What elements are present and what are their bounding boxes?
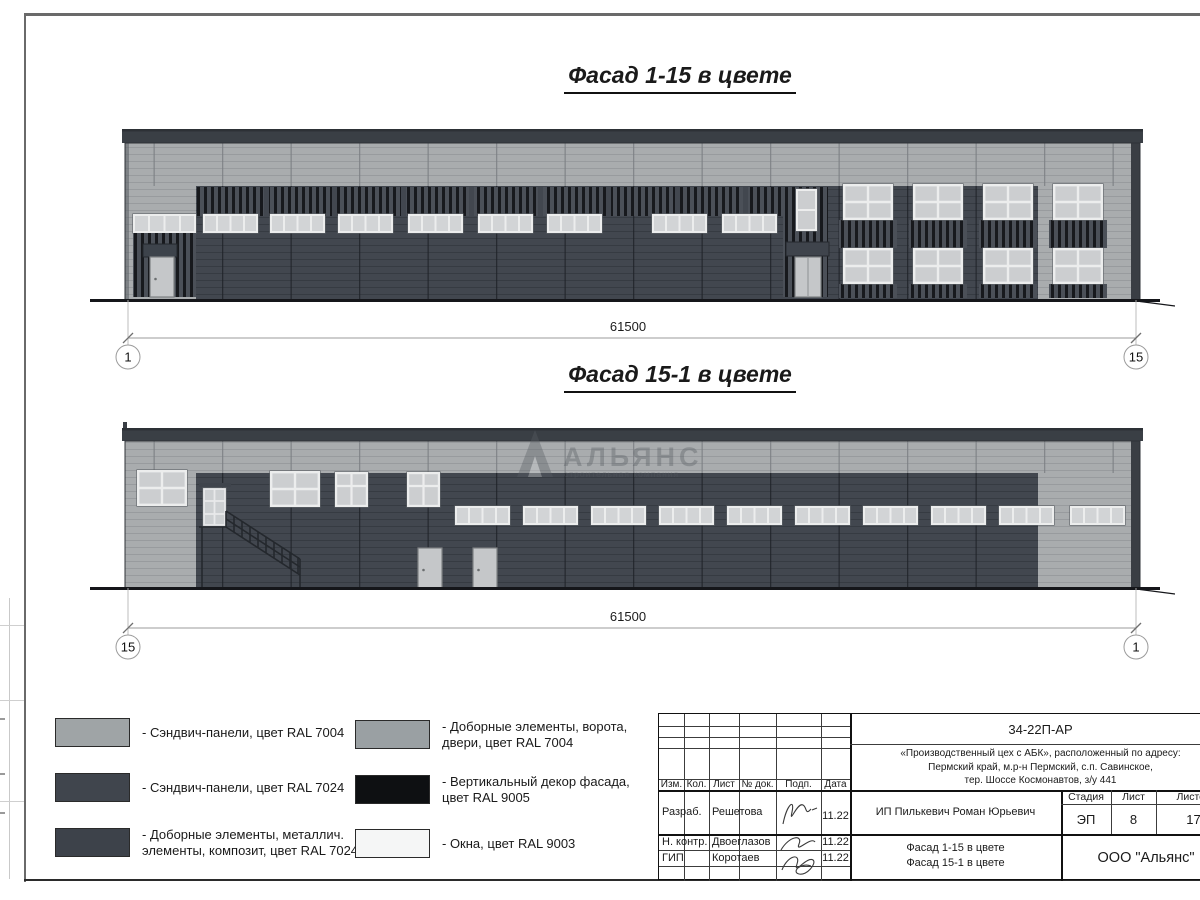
staff-role-nkontr: Н. контр. — [662, 834, 709, 850]
facade1-building — [122, 129, 1143, 300]
facade1-vertical-decor — [197, 187, 785, 216]
legend-label: - Вертикальный декор фасада, цвет RAL 90… — [442, 774, 630, 806]
left-margin-line — [9, 598, 10, 879]
title-block: Изм. Кол. Лист № док. Подп. Дата Разраб.… — [658, 713, 1200, 880]
legend-item: - Окна, цвет RAL 9003 — [355, 829, 575, 858]
rev-col-data: Дата — [821, 779, 850, 790]
drawing-sheet: Фасад 1-15 в цвете Фасад 15-1 в цвете — [0, 0, 1200, 900]
sheet-number: 8 — [1111, 804, 1156, 834]
legend-label: - Доборные элементы, металлич. элементы,… — [142, 827, 358, 859]
legend-swatch-ral7024-extras — [55, 828, 130, 857]
rev-col-kol: Кол. — [684, 779, 709, 790]
facade1-axis-left: 1 — [124, 350, 131, 365]
left-margin-divider — [0, 801, 24, 802]
legend-swatch-ral7004-doors — [355, 720, 430, 749]
company-name: ООО "Альянс" — [1061, 834, 1200, 881]
rev-col-izm: Изм. — [659, 779, 684, 790]
staff-name-nkontr: Двоеглазов — [712, 834, 776, 850]
left-margin-divider — [0, 700, 24, 701]
watermark-name: АЛЬЯНС — [563, 442, 703, 472]
sheets-label: Листов — [1156, 790, 1200, 804]
signature-razrab — [777, 792, 820, 832]
facade-1-15-drawing: 61500 1 15 — [85, 120, 1175, 372]
facade1-door-left — [150, 257, 174, 297]
rev-col-podp: Подп. — [776, 779, 821, 790]
legend-item: - Вертикальный декор фасада, цвет RAL 90… — [355, 775, 630, 804]
client-name: ИП Пилькевич Роман Юрьевич — [850, 790, 1061, 834]
facade-1-15-title: Фасад 1-15 в цвете — [180, 62, 1180, 94]
left-margin-divider — [0, 625, 24, 626]
rev-col-ndok: № док. — [739, 779, 776, 790]
legend-swatch-ral9003 — [355, 829, 430, 858]
legend-label: - Окна, цвет RAL 9003 — [442, 836, 575, 852]
legend-item: - Сэндвич-панели, цвет RAL 7004 — [55, 718, 344, 747]
facade1-entrance-abk — [783, 187, 829, 297]
ground-slope — [1140, 302, 1175, 307]
legend-swatch-ral9005 — [355, 775, 430, 804]
project-description: «Производственный цех с АБК», расположен… — [850, 747, 1200, 788]
staff-name-razrab: Решетова — [712, 790, 776, 834]
sheets-total: 17 — [1156, 804, 1200, 834]
facade1-dimension-value: 61500 — [610, 319, 646, 334]
legend-swatch-ral7024 — [55, 773, 130, 802]
rev-col-list: Лист — [709, 779, 739, 790]
staff-date-gip: 11.22 — [821, 850, 850, 866]
staff-role-gip: ГИП — [662, 850, 709, 866]
facade2-dimension-value: 61500 — [610, 609, 646, 624]
stage-label: Стадия — [1061, 790, 1111, 804]
sheet-label: Лист — [1111, 790, 1156, 804]
legend-item: - Доборные элементы, ворота, двери, цвет… — [355, 720, 627, 749]
ground-slope — [1140, 590, 1175, 595]
legend-swatch-ral7004 — [55, 718, 130, 747]
facade1-ribbon-windows — [203, 214, 777, 233]
facade1-dimension: 61500 1 15 — [116, 300, 1148, 369]
left-margin-tick — [0, 773, 5, 775]
facade1-axis-right: 15 — [1129, 350, 1143, 365]
facade-15-1-drawing: АЛЬЯНС строительная компания 61500 15 1 — [85, 415, 1175, 665]
facade2-door-1 — [418, 548, 442, 588]
facade2-dimension: 61500 15 1 — [116, 588, 1148, 659]
legend-item: - Сэндвич-панели, цвет RAL 7024 — [55, 773, 344, 802]
staff-name-gip: Коротаев — [712, 850, 776, 866]
stage-value: ЭП — [1061, 804, 1111, 834]
legend-label: - Доборные элементы, ворота, двери, цвет… — [442, 719, 627, 751]
facade2-axis-right: 1 — [1132, 640, 1139, 655]
legend-label: - Сэндвич-панели, цвет RAL 7024 — [142, 780, 344, 796]
watermark-tagline: строительная компания — [564, 469, 679, 479]
facade1-entrance-left — [133, 214, 196, 297]
facade2-door-2 — [473, 548, 497, 588]
sheet-title: Фасад 1-15 в цвете Фасад 15-1 в цвете — [850, 841, 1061, 871]
legend-item: - Доборные элементы, металлич. элементы,… — [55, 828, 358, 857]
signature-nkontr-gip — [777, 832, 820, 880]
facade2-window-left — [137, 470, 187, 506]
staff-date-razrab: 11.22 — [821, 798, 850, 834]
staff-role-razrab: Разраб. — [662, 790, 709, 834]
facade2-axis-left: 15 — [121, 640, 135, 655]
left-margin-tick — [0, 812, 5, 814]
doc-number: 34-22П-АР — [850, 716, 1200, 742]
left-margin-tick — [0, 718, 5, 720]
staff-date-nkontr: 11.22 — [821, 834, 850, 850]
legend-label: - Сэндвич-панели, цвет RAL 7004 — [142, 725, 344, 741]
